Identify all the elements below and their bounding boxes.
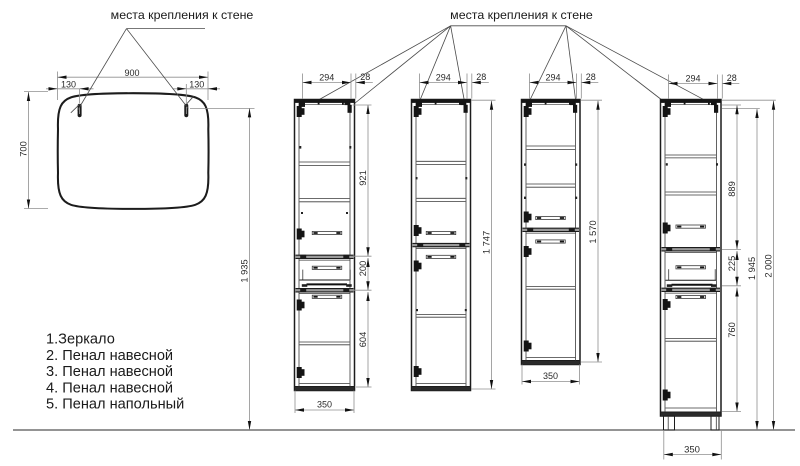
svg-text:1.Зеркало: 1.Зеркало (46, 332, 115, 348)
svg-text:28: 28 (586, 72, 596, 82)
svg-text:28: 28 (360, 72, 370, 82)
svg-text:1 935: 1 935 (240, 259, 250, 282)
svg-text:350: 350 (543, 371, 558, 381)
svg-text:5. Пенал напольный: 5. Пенал напольный (46, 397, 184, 413)
svg-text:294: 294 (319, 73, 334, 83)
svg-text:294: 294 (685, 74, 700, 84)
svg-text:604: 604 (358, 332, 368, 348)
svg-text:294: 294 (545, 73, 560, 83)
svg-text:200: 200 (358, 261, 368, 277)
svg-text:1 570: 1 570 (588, 220, 598, 243)
svg-text:2. Пенал навесной: 2. Пенал навесной (46, 348, 173, 364)
svg-text:2 000: 2 000 (764, 254, 774, 277)
svg-text:28: 28 (476, 72, 486, 82)
svg-text:225: 225 (727, 256, 737, 272)
svg-text:130: 130 (61, 79, 76, 89)
svg-text:1 747: 1 747 (482, 231, 492, 254)
svg-text:294: 294 (436, 73, 451, 83)
svg-text:900: 900 (124, 68, 139, 78)
svg-text:921: 921 (358, 170, 368, 186)
svg-text:1 945: 1 945 (747, 257, 757, 280)
svg-text:350: 350 (317, 400, 332, 410)
svg-text:760: 760 (727, 322, 737, 338)
svg-text:4. Пенал навесной: 4. Пенал навесной (46, 380, 173, 396)
svg-text:889: 889 (727, 181, 737, 197)
svg-text:130: 130 (189, 79, 204, 89)
svg-text:28: 28 (727, 73, 737, 83)
svg-text:700: 700 (18, 141, 28, 157)
svg-text:3. Пенал навесной: 3. Пенал навесной (46, 364, 173, 380)
svg-text:350: 350 (684, 445, 700, 456)
svg-text:места крепления к стене: места крепления к стене (111, 8, 254, 22)
svg-text:места крепления к стене: места крепления к стене (450, 8, 593, 22)
